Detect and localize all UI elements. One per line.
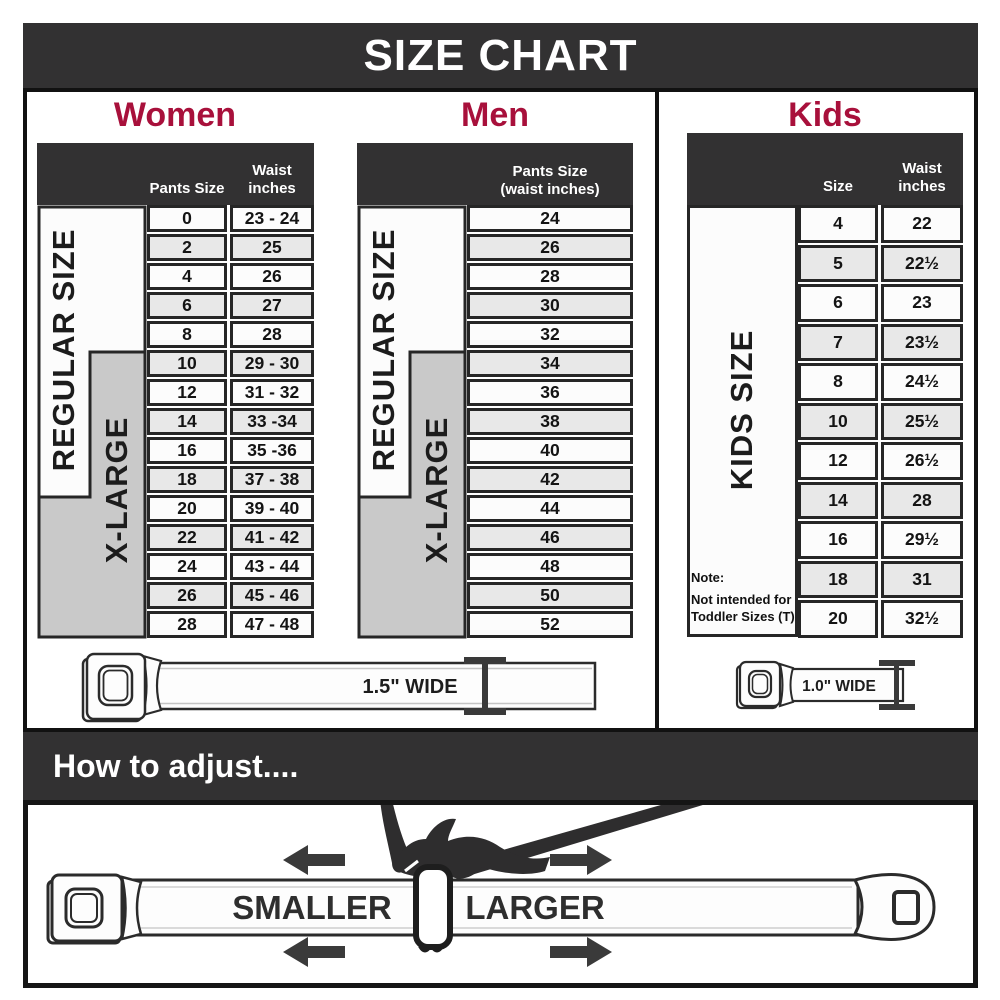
women-table-row: 20 39 - 40 <box>147 495 314 522</box>
kids-waist-cell: 22½ <box>881 245 963 283</box>
kids-waist-cell: 24½ <box>881 363 963 401</box>
men-table-row: 40 <box>467 437 633 464</box>
women-waist-cell: 27 <box>230 292 314 319</box>
women-pants-size-cell: 24 <box>147 553 227 580</box>
men-table-row: 52 <box>467 611 633 638</box>
women-table-row: 10 29 - 30 <box>147 350 314 377</box>
arrow-right-top-icon <box>550 845 612 875</box>
kids-belt-illustration: 1.0" WIDE <box>733 659 938 711</box>
men-pants-size-cell: 36 <box>467 379 633 406</box>
adult-width-label: 1.5" WIDE <box>362 676 457 698</box>
men-table-row: 44 <box>467 495 633 522</box>
men-table-row: 24 <box>467 205 633 232</box>
women-waist-cell: 45 - 46 <box>230 582 314 609</box>
women-waist-cell: 33 -34 <box>230 408 314 435</box>
women-table-row: 8 28 <box>147 321 314 348</box>
adjust-buckle-icon <box>48 875 141 943</box>
kids-waist-cell: 22 <box>881 205 963 243</box>
women-pants-size-cell: 6 <box>147 292 227 319</box>
men-table-row: 28 <box>467 263 633 290</box>
men-xlarge-label: X-LARGE <box>417 360 457 620</box>
women-waist-cell: 29 - 30 <box>230 350 314 377</box>
kids-table-row: 4 22 <box>798 205 963 243</box>
women-waist-cell: 43 - 44 <box>230 553 314 580</box>
kids-buckle-latch <box>780 664 793 706</box>
men-pants-size-cell: 40 <box>467 437 633 464</box>
women-table-row: 26 45 - 46 <box>147 582 314 609</box>
women-waist-cell: 39 - 40 <box>230 495 314 522</box>
women-table-row: 6 27 <box>147 292 314 319</box>
men-pants-size-cell: 24 <box>467 205 633 232</box>
men-rows: 24 26 28 30 32 34 <box>467 205 633 638</box>
kids-size-table: Size Waist inches KIDS SIZE Note: Not in… <box>687 133 963 637</box>
kids-size-cell: 12 <box>798 442 878 480</box>
women-pants-size-cell: 20 <box>147 495 227 522</box>
size-chart-page: SIZE CHART Women Men Kids Pants Size Wai… <box>0 0 1000 1000</box>
women-pants-size-cell: 12 <box>147 379 227 406</box>
women-waist-cell: 28 <box>230 321 314 348</box>
kids-size-cell: 7 <box>798 324 878 362</box>
kids-table-row: 8 24½ <box>798 363 963 401</box>
kids-waist-cell: 23½ <box>881 324 963 362</box>
women-waist-cell: 23 - 24 <box>230 205 314 232</box>
kids-note: Note: Not intended for Toddler Sizes (T) <box>691 570 797 626</box>
kids-size-label: KIDS SIZE <box>722 260 762 560</box>
men-pants-size-cell: 30 <box>467 292 633 319</box>
women-waist-cell: 47 - 48 <box>230 611 314 638</box>
adjust-heading: How to adjust.... <box>53 748 298 785</box>
men-pants-size-cell: 50 <box>467 582 633 609</box>
title-bar: SIZE CHART <box>23 23 978 88</box>
kids-waist-cell: 23 <box>881 284 963 322</box>
adjuster-slide <box>416 867 450 951</box>
kids-waist-header: Waist inches <box>881 160 963 198</box>
kids-waist-cell: 29½ <box>881 521 963 559</box>
women-waist-header: Waist inches <box>230 162 314 200</box>
adjust-illustration: SMALLER LARGER <box>28 805 973 983</box>
women-pants-size-cell: 18 <box>147 466 227 493</box>
men-pants-size-cell: 52 <box>467 611 633 638</box>
kids-table-row: 14 28 <box>798 482 963 520</box>
kids-table-row: 5 22½ <box>798 245 963 283</box>
women-table-row: 22 41 - 42 <box>147 524 314 551</box>
women-waist-cell: 31 - 32 <box>230 379 314 406</box>
women-waist-cell: 25 <box>230 234 314 261</box>
men-pants-size-cell: 48 <box>467 553 633 580</box>
women-pants-size-cell: 14 <box>147 408 227 435</box>
men-table-row: 50 <box>467 582 633 609</box>
women-pants-size-cell: 16 <box>147 437 227 464</box>
women-table-row: 24 43 - 44 <box>147 553 314 580</box>
adult-kids-divider <box>655 88 659 732</box>
kids-size-cell: 16 <box>798 521 878 559</box>
kids-waist-cell: 25½ <box>881 403 963 441</box>
kids-waist-cell: 32½ <box>881 600 963 638</box>
women-table-row: 2 25 <box>147 234 314 261</box>
women-pants-size-header: Pants Size <box>147 180 227 199</box>
page-title: SIZE CHART <box>364 31 638 81</box>
kids-size-cell: 18 <box>798 561 878 599</box>
women-heading: Women <box>38 96 312 136</box>
men-size-table: Pants Size (waist inches) REGULAR SIZE X… <box>357 143 633 640</box>
kids-waist-cell: 28 <box>881 482 963 520</box>
men-table-row: 48 <box>467 553 633 580</box>
kids-table-header: Size Waist inches <box>687 133 963 205</box>
women-waist-cell: 37 - 38 <box>230 466 314 493</box>
arrow-right-bottom-icon <box>550 937 612 967</box>
kids-size-cell: 20 <box>798 600 878 638</box>
kids-size-cell: 10 <box>798 403 878 441</box>
men-heading: Men <box>357 96 633 136</box>
women-pants-size-cell: 2 <box>147 234 227 261</box>
smaller-label: SMALLER <box>232 889 392 926</box>
adult-belt-illustration: 1.5" WIDE <box>80 648 610 728</box>
men-table-header: Pants Size (waist inches) <box>357 143 633 205</box>
men-table-row: 26 <box>467 234 633 261</box>
women-pants-size-cell: 28 <box>147 611 227 638</box>
kids-heading: Kids <box>687 96 963 136</box>
women-pants-size-cell: 0 <box>147 205 227 232</box>
kids-table-row: 16 29½ <box>798 521 963 559</box>
kids-size-cell: 14 <box>798 482 878 520</box>
men-regular-size-label: REGULAR SIZE <box>364 205 404 495</box>
women-size-table: Pants Size Waist inches REGULAR SIZE X-L… <box>37 143 314 640</box>
women-waist-cell: 41 - 42 <box>230 524 314 551</box>
kids-size-cell: 6 <box>798 284 878 322</box>
men-pants-size-cell: 44 <box>467 495 633 522</box>
men-table-row: 36 <box>467 379 633 406</box>
men-table-row: 30 <box>467 292 633 319</box>
kids-size-header: Size <box>798 178 878 197</box>
kids-table-row: 20 32½ <box>798 600 963 638</box>
women-regular-size-label: REGULAR SIZE <box>44 205 84 495</box>
men-pants-size-cell: 42 <box>467 466 633 493</box>
men-table-row: 46 <box>467 524 633 551</box>
women-table-row: 28 47 - 48 <box>147 611 314 638</box>
men-table-row: 32 <box>467 321 633 348</box>
larger-label: LARGER <box>465 889 605 926</box>
women-table-header: Pants Size Waist inches <box>37 143 314 205</box>
men-table-row: 34 <box>467 350 633 377</box>
women-xlarge-label: X-LARGE <box>97 360 137 620</box>
kids-waist-cell: 26½ <box>881 442 963 480</box>
adjust-heading-bar: How to adjust.... <box>23 732 978 800</box>
women-table-row: 14 33 -34 <box>147 408 314 435</box>
kids-table-row: 18 31 <box>798 561 963 599</box>
men-pants-size-cell: 38 <box>467 408 633 435</box>
women-pants-size-cell: 10 <box>147 350 227 377</box>
women-waist-cell: 35 -36 <box>230 437 314 464</box>
men-pants-size-cell: 34 <box>467 350 633 377</box>
kids-rows: 4 22 5 22½ 6 23 7 23½ <box>798 205 963 638</box>
kids-table-row: 7 23½ <box>798 324 963 362</box>
kids-width-label: 1.0" WIDE <box>802 678 876 695</box>
men-pants-size-cell: 32 <box>467 321 633 348</box>
women-pants-size-cell: 26 <box>147 582 227 609</box>
kids-size-cell: 4 <box>798 205 878 243</box>
men-pants-size-cell: 46 <box>467 524 633 551</box>
kids-table-row: 12 26½ <box>798 442 963 480</box>
arrow-left-top-icon <box>283 845 345 875</box>
kids-table-row: 10 25½ <box>798 403 963 441</box>
women-table-row: 4 26 <box>147 263 314 290</box>
men-pants-size-cell: 28 <box>467 263 633 290</box>
women-pants-size-cell: 4 <box>147 263 227 290</box>
kids-table-row: 6 23 <box>798 284 963 322</box>
arrow-left-bottom-icon <box>283 937 345 967</box>
men-table-row: 42 <box>467 466 633 493</box>
women-rows: 0 23 - 24 2 25 4 26 6 27 <box>147 205 314 638</box>
women-pants-size-cell: 8 <box>147 321 227 348</box>
kids-size-cell: 5 <box>798 245 878 283</box>
adjust-belt-tongue <box>855 875 934 940</box>
men-table-row: 38 <box>467 408 633 435</box>
women-table-row: 18 37 - 38 <box>147 466 314 493</box>
women-waist-cell: 26 <box>230 263 314 290</box>
women-table-row: 0 23 - 24 <box>147 205 314 232</box>
women-table-row: 16 35 -36 <box>147 437 314 464</box>
men-pants-size-cell: 26 <box>467 234 633 261</box>
kids-waist-cell: 31 <box>881 561 963 599</box>
women-pants-size-cell: 22 <box>147 524 227 551</box>
kids-size-cell: 8 <box>798 363 878 401</box>
men-pants-size-header: Pants Size (waist inches) <box>467 163 633 201</box>
women-table-row: 12 31 - 32 <box>147 379 314 406</box>
